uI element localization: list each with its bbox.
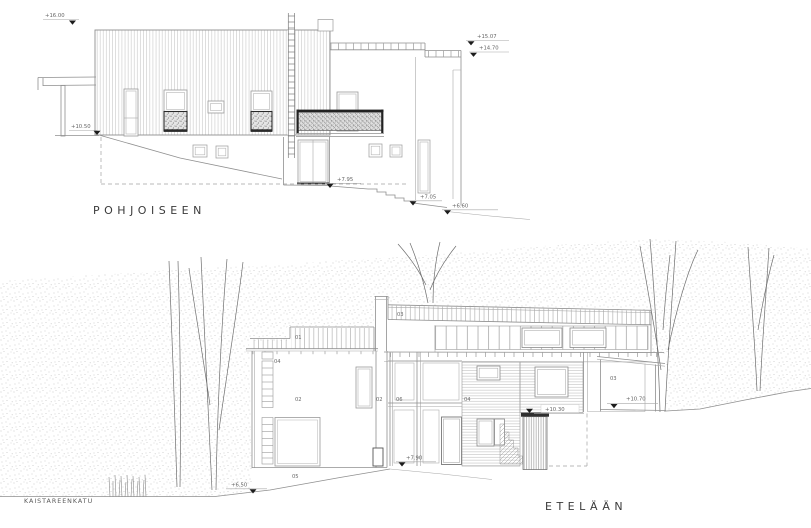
site-stairs bbox=[330, 186, 413, 203]
north-elevation: +16.00 +15.07 +14.70 +10.50 +7.95 bbox=[38, 13, 530, 220]
street-label: KAISTAREENKATU bbox=[24, 498, 93, 505]
siding-window bbox=[477, 419, 494, 446]
carport-post bbox=[61, 86, 65, 137]
part-label-02b: 02 bbox=[376, 397, 383, 403]
upper-window-2 bbox=[570, 328, 606, 348]
entry-door bbox=[523, 417, 547, 470]
level-triangle-icon bbox=[470, 53, 477, 57]
siding-section bbox=[462, 362, 523, 466]
mid-door bbox=[442, 417, 462, 465]
part-label-03b: 03 bbox=[610, 376, 617, 382]
balcony-rail bbox=[297, 110, 384, 112]
elevation-label: +16.00 bbox=[45, 13, 65, 19]
right-block-window bbox=[535, 367, 568, 397]
roof-vent-box bbox=[318, 20, 333, 32]
elevation-marker-795: +7.95 bbox=[325, 177, 361, 188]
elevation-label: +14.70 bbox=[479, 46, 499, 52]
sunken-entry bbox=[521, 413, 587, 470]
window-with-panel-2 bbox=[251, 91, 273, 132]
part-label-04b: 04 bbox=[464, 397, 471, 403]
left-tall-window bbox=[356, 367, 372, 408]
roof-ladder bbox=[288, 13, 295, 158]
elevation-label: +6.60 bbox=[452, 204, 469, 210]
south-elevation: +10.30 +10.70 +7.90 +6.50 01 02 bbox=[0, 239, 811, 513]
level-triangle-icon bbox=[444, 210, 451, 214]
elevation-marker-705: +7.05 bbox=[408, 195, 442, 206]
part-label-06: 06 bbox=[396, 397, 403, 403]
elevation-label: +6.50 bbox=[231, 483, 248, 489]
elevation-label: +7.05 bbox=[420, 195, 436, 201]
drawing-sheet: +16.00 +15.07 +14.70 +10.50 +7.95 bbox=[0, 0, 811, 528]
upper-window-1 bbox=[522, 328, 562, 348]
window-with-panel-1 bbox=[164, 90, 188, 132]
clerestory-band bbox=[435, 325, 648, 352]
elevation-marker-660: +6.60 bbox=[442, 204, 498, 215]
basement-window-2 bbox=[216, 146, 228, 158]
left-large-opening bbox=[275, 418, 320, 467]
elevation-marker-1600: +16.00 bbox=[43, 13, 79, 25]
elevation-label: +7.95 bbox=[337, 177, 353, 183]
foundation-pier bbox=[373, 448, 383, 466]
part-label-01: 01 bbox=[295, 335, 302, 341]
elevation-marker-1470: +14.70 bbox=[469, 46, 509, 57]
north-title: POHJOISEEN bbox=[93, 204, 206, 217]
level-triangle-icon bbox=[69, 21, 76, 25]
elevations-svg: +16.00 +15.07 +14.70 +10.50 +7.95 bbox=[0, 0, 811, 528]
part-label-03: 03 bbox=[397, 312, 404, 318]
elevation-label: +10.70 bbox=[626, 397, 646, 403]
elevation-label: +10.30 bbox=[545, 407, 565, 413]
part-label-05: 05 bbox=[292, 474, 299, 480]
part-label-04: 04 bbox=[274, 359, 281, 365]
elevation-marker-1507: +15.07 bbox=[466, 34, 509, 45]
part-label-02: 02 bbox=[295, 397, 302, 403]
elevation-label: +7.90 bbox=[406, 456, 423, 462]
elevation-label: +15.07 bbox=[477, 34, 497, 40]
south-title: ETELÄÄN bbox=[545, 500, 627, 513]
level-triangle-icon bbox=[468, 41, 475, 45]
elevation-label: +10.50 bbox=[71, 124, 91, 130]
sliding-door bbox=[297, 140, 329, 185]
